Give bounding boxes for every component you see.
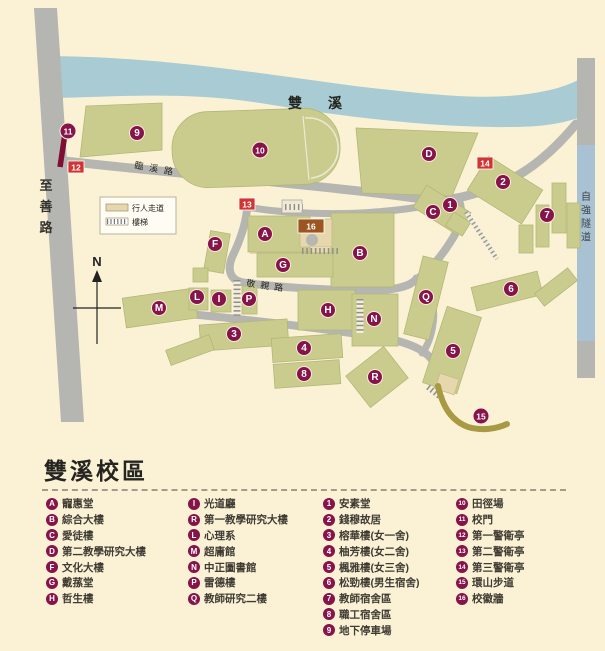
svg-text:12: 12 — [71, 163, 81, 173]
legend-item-I: I光道廳 — [188, 496, 288, 512]
zhishan-road-label: 至善路 — [39, 178, 53, 235]
legend-item-H: H哲生樓 — [46, 591, 146, 607]
legend-badge-P: P — [188, 577, 200, 589]
legend-label-16: 校徽牆 — [472, 591, 504, 606]
legend-item-Q: Q教師研究二樓 — [188, 591, 288, 607]
legend-label-5: 楓雅樓(女三舍) — [339, 560, 409, 575]
svg-text:D: D — [425, 149, 432, 160]
legend-label-F: 文化大樓 — [62, 560, 104, 575]
map-marker-13: 13 — [239, 198, 255, 210]
legend-label-H: 哲生樓 — [62, 591, 94, 606]
map-marker-P: P — [242, 292, 257, 307]
legend-label-L: 心理系 — [204, 528, 236, 543]
svg-text:10: 10 — [255, 146, 265, 156]
legend-item-3: 3榕華樓(女一舍) — [323, 528, 420, 544]
map-marker-6: 6 — [504, 282, 519, 297]
stairs-3 — [466, 212, 497, 259]
svg-text:3: 3 — [231, 329, 237, 340]
legend-item-16: 16校徽牆 — [456, 591, 525, 607]
legend-badge-M: M — [188, 545, 200, 557]
legend-item-C: C愛徒樓 — [46, 528, 146, 544]
legend-column-2: I光道廳R第一教學研究大樓L心理系M超庸館N中正圖書館P雷德樓Q教師研究二樓 — [188, 496, 288, 607]
legend-item-P: P雷德樓 — [188, 575, 288, 591]
map-marker-F: F — [208, 237, 223, 252]
svg-text:C: C — [429, 207, 436, 218]
legend-item-10: 10田徑場 — [456, 496, 525, 512]
legend-label-R: 第一教學研究大樓 — [204, 512, 288, 527]
map-marker-14: 14 — [477, 157, 493, 169]
svg-text:6: 6 — [508, 284, 514, 295]
map-marker-L: L — [190, 290, 205, 305]
svg-text:5: 5 — [450, 346, 456, 357]
legend-badge-I: I — [188, 498, 200, 510]
svg-text:R: R — [371, 372, 379, 383]
legend-column-4: 10田徑場11校門12第一警衛亭13第二警衛亭14第三警衛亭15環山步道16校徽… — [456, 496, 525, 607]
svg-text:H: H — [324, 305, 331, 316]
legend-label-B: 綜合大樓 — [62, 512, 104, 527]
map-marker-5: 5 — [446, 344, 461, 359]
legend-item-5: 5楓雅樓(女三舍) — [323, 559, 420, 575]
map-marker-H: H — [321, 303, 336, 318]
svg-text:8: 8 — [301, 369, 307, 380]
map-marker-12: 12 — [68, 161, 84, 173]
legend-badge-14: 14 — [456, 561, 468, 573]
svg-text:P: P — [246, 294, 253, 305]
legend-column-3: 1安素堂2錢穆故居3榕華樓(女一舍)4柚芳樓(女二舍)5楓雅樓(女三舍)6松勁樓… — [323, 496, 420, 638]
building-7b — [552, 183, 566, 233]
svg-text:2: 2 — [500, 177, 506, 188]
map-marker-I: I — [212, 292, 227, 307]
map-marker-D: D — [422, 147, 437, 162]
legend-item-2: 2錢穆故居 — [323, 512, 420, 528]
svg-text:4: 4 — [301, 343, 307, 354]
legend-label-D: 第二教學研究大樓 — [62, 544, 146, 559]
legend-column-1: A寵惠堂B綜合大樓C愛徒樓D第二教學研究大樓F文化大樓G戴蓀堂H哲生樓 — [46, 496, 146, 607]
legend-badge-12: 12 — [456, 529, 468, 541]
legend-item-G: G戴蓀堂 — [46, 575, 146, 591]
legend-label-A: 寵惠堂 — [62, 496, 94, 511]
legend-item-6: 6松勁樓(男生宿舍) — [323, 575, 420, 591]
building-G — [257, 253, 333, 277]
map-marker-16: 16 — [298, 219, 324, 233]
building-D — [356, 128, 478, 196]
legend-label-12: 第一警衛亭 — [472, 528, 525, 543]
legend-label-15: 環山步道 — [472, 575, 514, 590]
legend-badge-F: F — [46, 561, 58, 573]
map-marker-1: 1 — [443, 198, 458, 213]
legend-item-L: L心理系 — [188, 528, 288, 544]
legend-item-F: F文化大樓 — [46, 559, 146, 575]
legend-label-3: 榕華樓(女一舍) — [339, 528, 409, 543]
legend-item-A: A寵惠堂 — [46, 496, 146, 512]
legend-label-4: 柚芳樓(女二舍) — [339, 544, 409, 559]
map-marker-4: 4 — [297, 341, 312, 356]
map-marker-M: M — [152, 301, 167, 316]
legend-badge-D: D — [46, 545, 58, 557]
legend-badge-3: 3 — [323, 529, 335, 541]
svg-text:13: 13 — [242, 200, 252, 210]
legend-badge-G: G — [46, 577, 58, 589]
legend-item-8: 8職工宿舍區 — [323, 607, 420, 623]
legend-item-1: 1安素堂 — [323, 496, 420, 512]
legend-item-12: 12第一警衛亭 — [456, 528, 525, 544]
legend-badge-2: 2 — [323, 514, 335, 526]
legend-label-8: 職工宿舍區 — [339, 607, 392, 622]
legend-badge-B: B — [46, 514, 58, 526]
svg-text:16: 16 — [306, 222, 316, 232]
legend-badge-9: 9 — [323, 624, 335, 636]
legend-item-14: 14第三警衛亭 — [456, 559, 525, 575]
legend-label-1: 安素堂 — [339, 496, 371, 511]
building-L-annex — [193, 268, 208, 282]
legend-badge-R: R — [188, 514, 200, 526]
legend-item-11: 11校門 — [456, 512, 525, 528]
map-marker-R: R — [368, 370, 383, 385]
map-marker-B: B — [353, 246, 368, 261]
svg-text:7: 7 — [544, 210, 550, 221]
legend-divider — [42, 489, 566, 491]
legend-badge-6: 6 — [323, 577, 335, 589]
svg-text:Q: Q — [422, 292, 430, 303]
legend-label-I: 光道廳 — [204, 496, 236, 511]
svg-text:15: 15 — [476, 412, 486, 422]
svg-text:A: A — [261, 229, 268, 240]
building-7c — [567, 203, 580, 248]
svg-text:F: F — [212, 239, 218, 250]
building-9 — [80, 103, 162, 157]
legend-badge-4: 4 — [323, 545, 335, 557]
legend-badge-5: 5 — [323, 561, 335, 573]
legend-badge-8: 8 — [323, 608, 335, 620]
building-annex-sw — [166, 335, 215, 366]
legend-badge-H: H — [46, 593, 58, 605]
legend-item-9: 9地下停車場 — [323, 622, 420, 638]
river-label: 雙溪 — [288, 95, 368, 111]
legend-label-6: 松勁樓(男生宿舍) — [339, 575, 420, 590]
legend-badge-C: C — [46, 529, 58, 541]
svg-text:1: 1 — [447, 200, 453, 211]
map-marker-Q: Q — [419, 290, 434, 305]
map-marker-11: 11 — [60, 123, 76, 139]
legend-badge-N: N — [188, 561, 200, 573]
legend-badge-16: 16 — [456, 593, 468, 605]
legend-label-N: 中正圖書館 — [204, 560, 257, 575]
svg-text:I: I — [218, 294, 221, 305]
legend-label-13: 第二警衛亭 — [472, 544, 525, 559]
legend-badge-Q: Q — [188, 593, 200, 605]
legend-label-Q: 教師研究二樓 — [204, 591, 267, 606]
legend-section: 雙溪校區 A寵惠堂B綜合大樓C愛徒樓D第二教學研究大樓F文化大樓G戴蓀堂H哲生樓… — [0, 448, 605, 651]
legend-title: 雙溪校區 — [44, 452, 148, 486]
campus-map-page: N 行人走道 樓梯 雙溪 至善路 自強隧道 臨溪路 敬親路 ABCDFGHILM… — [0, 0, 605, 651]
svg-text:14: 14 — [480, 159, 490, 169]
legend-label-2: 錢穆故居 — [339, 512, 381, 527]
legend-badge-7: 7 — [323, 593, 335, 605]
legend-label-9: 地下停車場 — [339, 623, 392, 638]
stairs-key-label: 樓梯 — [132, 217, 148, 227]
legend-item-15: 15環山步道 — [456, 575, 525, 591]
svg-text:N: N — [370, 314, 377, 325]
map-marker-2: 2 — [496, 175, 511, 190]
legend-label-10: 田徑場 — [472, 496, 504, 511]
legend-item-R: R第一教學研究大樓 — [188, 512, 288, 528]
legend-item-N: N中正圖書館 — [188, 559, 288, 575]
svg-text:B: B — [356, 248, 363, 259]
map-marker-15: 15 — [473, 408, 489, 424]
map-marker-G: G — [276, 258, 291, 273]
map-marker-9: 9 — [130, 126, 145, 141]
compass-arrow — [92, 270, 102, 282]
map-key-box: 行人走道 樓梯 — [100, 197, 176, 234]
svg-text:G: G — [279, 260, 287, 271]
legend-item-D: D第二教學研究大樓 — [46, 543, 146, 559]
campus-map: N 行人走道 樓梯 雙溪 至善路 自強隧道 臨溪路 敬親路 ABCDFGHILM… — [0, 0, 605, 450]
walkway-swatch — [106, 204, 128, 211]
map-marker-N: N — [367, 312, 382, 327]
legend-label-11: 校門 — [472, 512, 493, 527]
legend-badge-11: 11 — [456, 514, 468, 526]
legend-item-4: 4柚芳樓(女二舍) — [323, 543, 420, 559]
svg-text:11: 11 — [64, 127, 73, 137]
map-marker-10: 10 — [252, 142, 268, 158]
map-marker-A: A — [258, 227, 273, 242]
legend-item-13: 13第二警衛亭 — [456, 543, 525, 559]
legend-badge-10: 10 — [456, 498, 468, 510]
emblem-circle — [306, 234, 318, 246]
legend-badge-A: A — [46, 498, 58, 510]
legend-label-7: 教師宿舍區 — [339, 591, 392, 606]
compass-label: N — [92, 254, 101, 269]
legend-label-14: 第三警衛亭 — [472, 560, 525, 575]
legend-item-B: B綜合大樓 — [46, 512, 146, 528]
compass: N — [73, 254, 121, 344]
walkway-key-label: 行人走道 — [132, 203, 164, 213]
svg-text:L: L — [194, 292, 200, 303]
legend-badge-15: 15 — [456, 577, 468, 589]
map-marker-3: 3 — [227, 327, 242, 342]
svg-text:9: 9 — [134, 128, 140, 139]
map-marker-7: 7 — [540, 208, 555, 223]
legend-label-M: 超庸館 — [204, 544, 236, 559]
legend-badge-L: L — [188, 529, 200, 541]
legend-label-P: 雷德樓 — [204, 575, 236, 590]
legend-item-M: M超庸館 — [188, 543, 288, 559]
map-marker-C: C — [426, 205, 441, 220]
legend-label-C: 愛徒樓 — [62, 528, 94, 543]
svg-text:M: M — [155, 303, 163, 314]
legend-item-7: 7教師宿舍區 — [323, 591, 420, 607]
legend-badge-13: 13 — [456, 545, 468, 557]
building-7d — [519, 225, 533, 253]
legend-badge-1: 1 — [323, 498, 335, 510]
map-marker-8: 8 — [297, 367, 312, 382]
legend-label-G: 戴蓀堂 — [62, 575, 94, 590]
buildings-layer — [80, 103, 580, 408]
